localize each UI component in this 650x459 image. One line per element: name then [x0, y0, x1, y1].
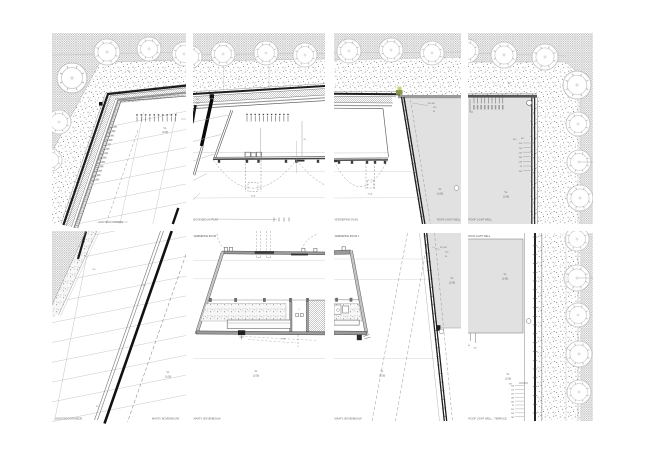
svg-text:VERDIEPING PLAN: VERDIEPING PLAN	[335, 218, 359, 222]
svg-text:VERDIEPING 8OUW: VERDIEPING 8OUW	[194, 235, 217, 238]
svg-text:310: 310	[511, 409, 514, 411]
svg-text:(1.08): (1.08)	[165, 376, 171, 379]
svg-text:(7.4): (7.4)	[251, 196, 256, 198]
svg-text:MAATV. BOVENBOUW: MAATV. BOVENBOUW	[152, 417, 180, 421]
svg-text:40: 40	[468, 345, 470, 347]
svg-text:ROOF LIGHT WELL: ROOF LIGHT WELL	[469, 235, 491, 238]
svg-text:LENGTEDOORSNEDE: LENGTEDOORSNEDE	[98, 221, 123, 224]
svg-text:1.948: 1.948	[280, 339, 286, 341]
svg-text:947: 947	[509, 383, 512, 385]
svg-text:ROOF LIGHT WELL: ROOF LIGHT WELL	[469, 218, 493, 222]
svg-text:LENGTEDOORSNEDE: LENGTEDOORSNEDE	[55, 417, 82, 421]
svg-text:110: 110	[511, 390, 514, 392]
svg-text:MAATV. BOVENBOUW: MAATV. BOVENBOUW	[194, 417, 222, 421]
svg-text:(7.4): (7.4)	[368, 194, 373, 196]
svg-text:ROOF LIGHT WELL - TERRACE: ROOF LIGHT WELL - TERRACE	[469, 417, 507, 421]
svg-text:VERDIEPING 8OUW 1: VERDIEPING 8OUW 1	[335, 235, 360, 238]
svg-text:(1.08): (1.08)	[162, 131, 168, 134]
svg-text:240: 240	[511, 413, 514, 415]
svg-text:(1.08): (1.08)	[449, 282, 455, 285]
svg-text:(1.08): (1.08)	[505, 378, 511, 381]
svg-text:ROOF LIGHT WELL: ROOF LIGHT WELL	[437, 218, 461, 222]
svg-text:240: 240	[474, 348, 477, 350]
svg-text:(1.96): (1.96)	[503, 196, 509, 199]
svg-text:180: 180	[511, 397, 514, 399]
svg-text:(1.96): (1.96)	[502, 278, 508, 281]
svg-text:180: 180	[511, 417, 514, 419]
svg-text:245: 245	[511, 394, 514, 396]
svg-text:BOVENBOUW PLAN: BOVENBOUW PLAN	[194, 218, 219, 222]
svg-text:310 947: 310 947	[440, 247, 448, 249]
svg-text:(1.08): (1.08)	[253, 375, 259, 378]
svg-text:MAATV. BOVENBOUW: MAATV. BOVENBOUW	[335, 417, 363, 421]
svg-text:240: 240	[511, 386, 514, 388]
svg-text:(1.08): (1.08)	[379, 375, 385, 378]
svg-text:246: 246	[511, 401, 514, 403]
svg-text:95: 95	[512, 405, 514, 407]
svg-text:(1.08): (1.08)	[437, 193, 443, 196]
svg-text:310 947: 310 947	[428, 103, 436, 105]
